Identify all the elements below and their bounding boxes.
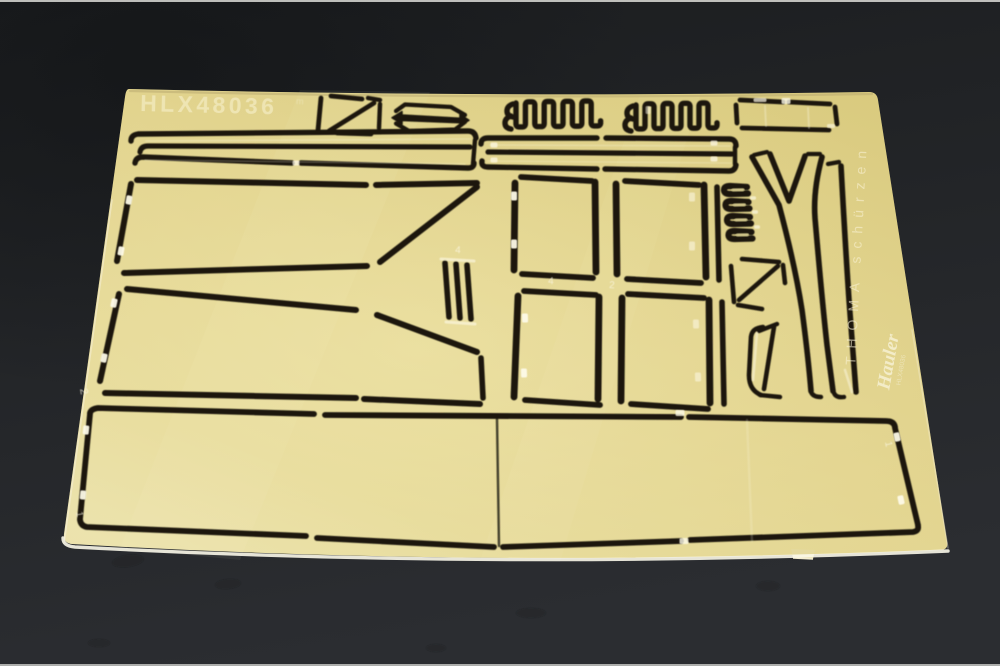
svg-text:2: 2 [609,280,616,291]
svg-text:HLX48036: HLX48036 [140,90,278,120]
svg-text:4: 4 [548,276,555,287]
svg-text:m: m [296,96,304,106]
svg-text:4: 4 [455,245,462,256]
